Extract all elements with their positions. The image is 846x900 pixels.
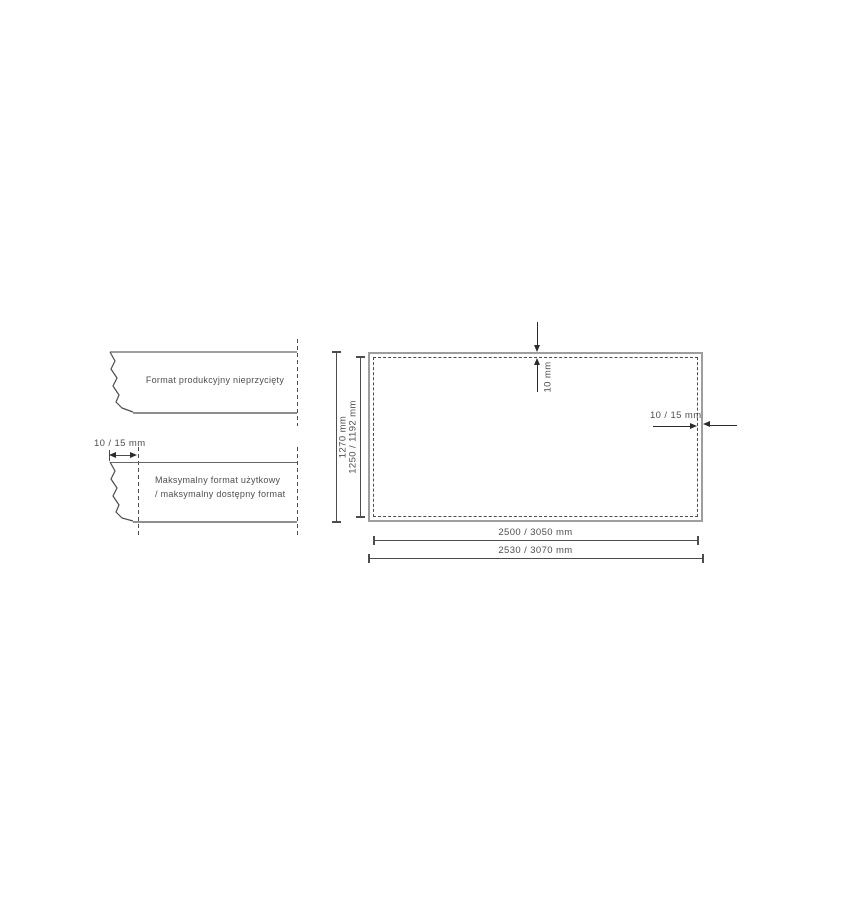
usable-format-label-line2: / maksymalny dostępny format <box>155 487 285 501</box>
top-trim-outer-arrow-icon <box>534 345 540 352</box>
side-trim-label: 10 / 15 mm <box>650 410 696 421</box>
top-trim-inner-arrow-line <box>537 364 538 392</box>
usable-torn-edge <box>105 461 137 523</box>
top-trim-outer-arrow-line <box>537 322 538 346</box>
dim-inner-height-line <box>360 357 361 517</box>
usable-cut-line-left <box>138 447 139 537</box>
dim-inner-height-label: 1250 / 1192 mm <box>348 400 359 474</box>
dim-outer-width-line <box>368 558 703 559</box>
edge-trim-arrow-right-icon <box>130 452 137 458</box>
side-trim-leader-line <box>653 426 691 427</box>
dim-outer-width-tick-left <box>368 554 370 563</box>
side-trim-external-arrow-icon <box>703 421 710 427</box>
dim-inner-width-tick-left <box>373 536 375 545</box>
top-trim-label: 10 mm <box>543 361 554 392</box>
dim-outer-height-tick-bottom <box>332 521 341 523</box>
sheet-inner-rect <box>373 357 698 517</box>
uncut-format-label: Format produkcyjny nieprzycięty <box>133 375 297 385</box>
usable-format-label: Maksymalny format użytkowy / maksymalny … <box>155 473 285 501</box>
dim-outer-height-tick-top <box>332 351 341 353</box>
edge-trim-arrow-left-icon <box>109 452 116 458</box>
dim-inner-width-tick-right <box>697 536 699 545</box>
dim-outer-width-tick-right <box>702 554 704 563</box>
uncut-cut-line <box>297 339 298 426</box>
diagram-canvas: Format produkcyjny nieprzycięty 10 / 15 … <box>0 0 846 900</box>
dim-outer-width-label: 2530 / 3070 mm <box>368 545 703 556</box>
usable-format-label-line1: Maksymalny format użytkowy <box>155 473 285 487</box>
side-trim-external-arrow-line <box>710 425 737 426</box>
dim-inner-width-label: 2500 / 3050 mm <box>373 527 698 538</box>
uncut-bottom-edge <box>133 412 297 414</box>
dim-inner-height-tick-bottom <box>356 516 365 518</box>
usable-bottom-edge <box>133 521 297 523</box>
usable-top-edge <box>110 462 297 463</box>
usable-cut-line-right <box>297 447 298 537</box>
uncut-top-edge <box>110 351 297 353</box>
dim-inner-width-line <box>373 540 698 541</box>
dim-inner-height-tick-top <box>356 356 365 358</box>
side-trim-leader-arrow-icon <box>690 423 697 429</box>
